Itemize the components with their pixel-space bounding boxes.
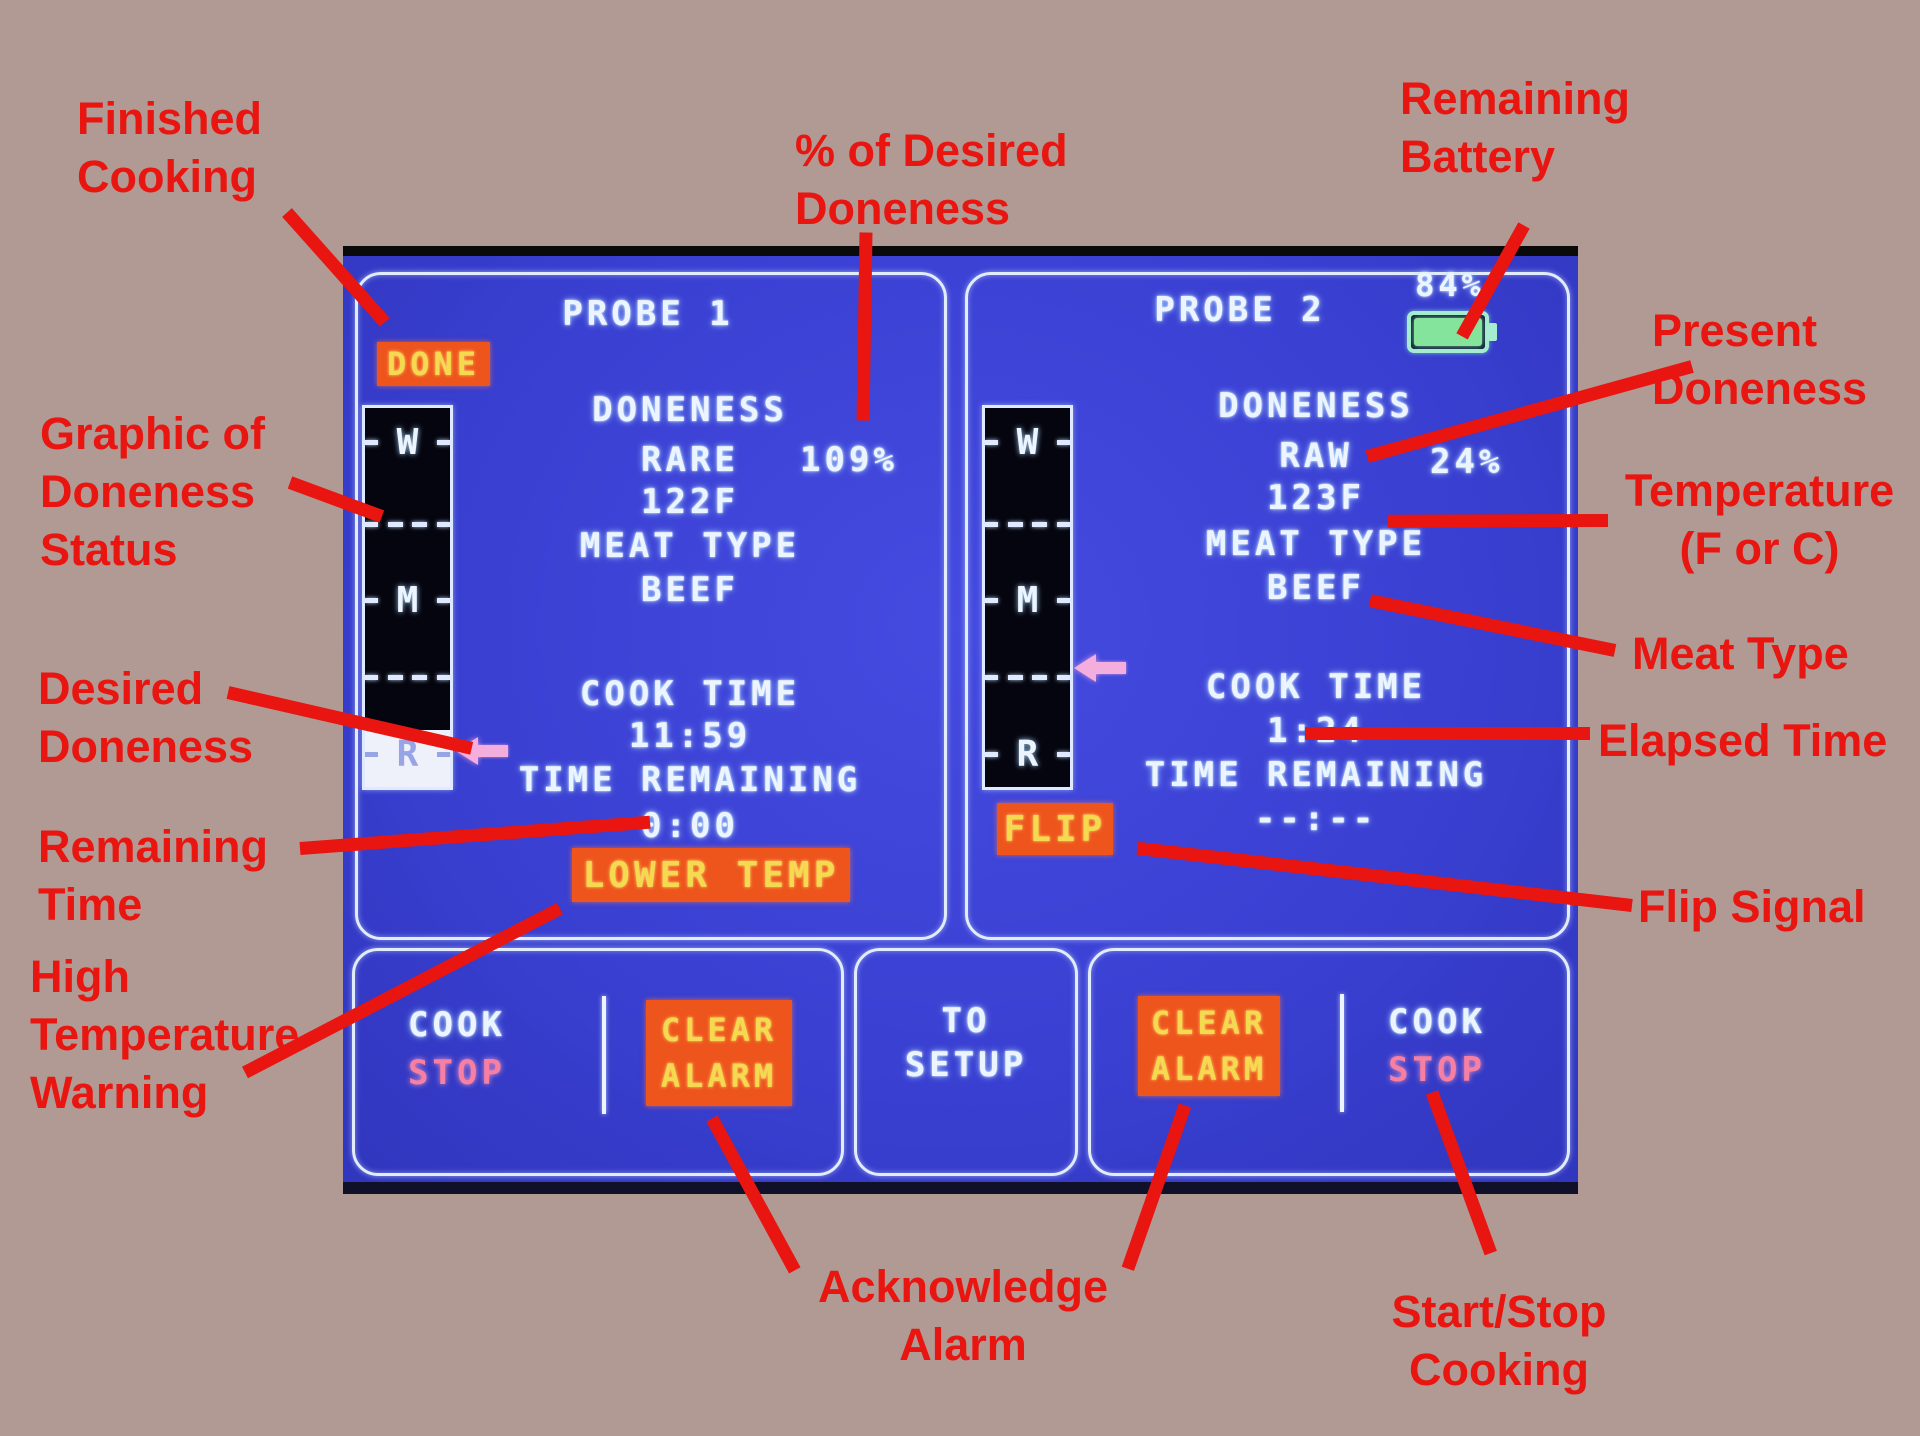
probe1-time-remaining-label: TIME REMAINING [480, 761, 900, 799]
probe2-time-remaining-label: TIME REMAINING [1106, 756, 1526, 794]
callout-elapsed-time: Elapsed Time [1598, 712, 1887, 770]
probe2-meat-type-label: MEAT TYPE [1106, 525, 1526, 563]
callout-temperature: Temperature(F or C) [1617, 462, 1902, 578]
probe1-meat-type-label: MEAT TYPE [480, 527, 900, 565]
clear-alarm-label-line2: ALARM [1151, 1046, 1267, 1092]
probe1-cook-time-value: 11:59 [480, 717, 900, 755]
divider [602, 996, 606, 1114]
clear-alarm-label-line2: ALARM [661, 1053, 777, 1099]
probe1-cook-time-label: COOK TIME [480, 675, 900, 713]
scale-well-letter: W [1017, 422, 1039, 463]
scale-tick-row [1008, 675, 1047, 680]
scale-medium-letter: M [397, 580, 419, 621]
probe2-flip-signal-badge: FLIP [997, 803, 1113, 855]
probe1-doneness-label: DONENESS [480, 391, 900, 429]
probe2-doneness-scale: W M R [982, 405, 1073, 790]
callout-meat-type: Meat Type [1632, 625, 1849, 683]
callout-start-stop-cooking: Start/StopCooking [1369, 1283, 1629, 1399]
probe2-title: PROBE 2 [1070, 291, 1410, 329]
callout-high-temperature-warning: HighTemperatureWarning [30, 948, 299, 1122]
callout-graphic-doneness-status: Graphic ofDonenessStatus [40, 405, 265, 579]
callout-present-doneness: PresentDoneness [1652, 302, 1867, 418]
callout-acknowledge-alarm: AcknowledgeAlarm [763, 1258, 1163, 1374]
probe1-doneness-percent: 109% [800, 441, 960, 479]
probe2-stop-button-label[interactable]: STOP [1374, 1051, 1500, 1089]
probe2-cook-time-label: COOK TIME [1106, 668, 1526, 706]
to-setup-button-line2[interactable]: SETUP [854, 1046, 1078, 1084]
probe1-cook-button-label[interactable]: COOK [396, 1006, 518, 1044]
divider [1340, 994, 1344, 1112]
probe2-clear-alarm-button[interactable]: CLEAR ALARM [1138, 996, 1280, 1096]
probe1-title: PROBE 1 [478, 295, 818, 333]
callout-pct-desired-doneness: % of DesiredDoneness [795, 122, 1068, 238]
callout-flip-signal: Flip Signal [1638, 878, 1866, 936]
probe1-temperature: 122F [480, 483, 900, 521]
scale-medium-letter: M [1017, 580, 1039, 621]
probe2-temperature: 123F [1106, 479, 1526, 517]
probe2-cook-button-label[interactable]: COOK [1374, 1003, 1500, 1041]
callout-remaining-time: RemainingTime [38, 818, 268, 934]
probe2-meat-type-value: BEEF [1106, 569, 1526, 607]
annotation-line-elapsed-time [1305, 727, 1590, 740]
probe1-clear-alarm-button[interactable]: CLEAR ALARM [646, 1000, 792, 1106]
probe2-doneness-percent: 24% [1430, 443, 1590, 481]
callout-remaining-battery: RemainingBattery [1400, 70, 1630, 186]
probe1-meat-type-value: BEEF [480, 571, 900, 609]
annotation-line-temperature [1388, 514, 1608, 528]
scale-tick-row [1008, 522, 1047, 527]
callout-desired-doneness: DesiredDoneness [38, 660, 253, 776]
scale-rare-letter: R [1017, 734, 1039, 775]
probe2-time-remaining-value: --:-- [1106, 800, 1526, 838]
annotated-screenshot: PROBE 1 DONE W M R DONENESS RARE 109% 12… [0, 0, 1920, 1436]
scale-well-letter: W [397, 422, 419, 463]
to-setup-button-line1[interactable]: TO [854, 1002, 1078, 1040]
probe2-doneness-label: DONENESS [1106, 387, 1526, 425]
scale-tick-row [388, 522, 427, 527]
callout-finished-cooking: FinishedCooking [77, 90, 262, 206]
scale-tick-row [388, 675, 427, 680]
clear-alarm-label-line1: CLEAR [661, 1007, 777, 1053]
clear-alarm-label-line1: CLEAR [1151, 1000, 1267, 1046]
probe1-high-temp-warning-badge: LOWER TEMP [572, 848, 850, 902]
probe1-stop-button-label[interactable]: STOP [396, 1054, 518, 1092]
probe1-done-badge: DONE [377, 342, 490, 386]
